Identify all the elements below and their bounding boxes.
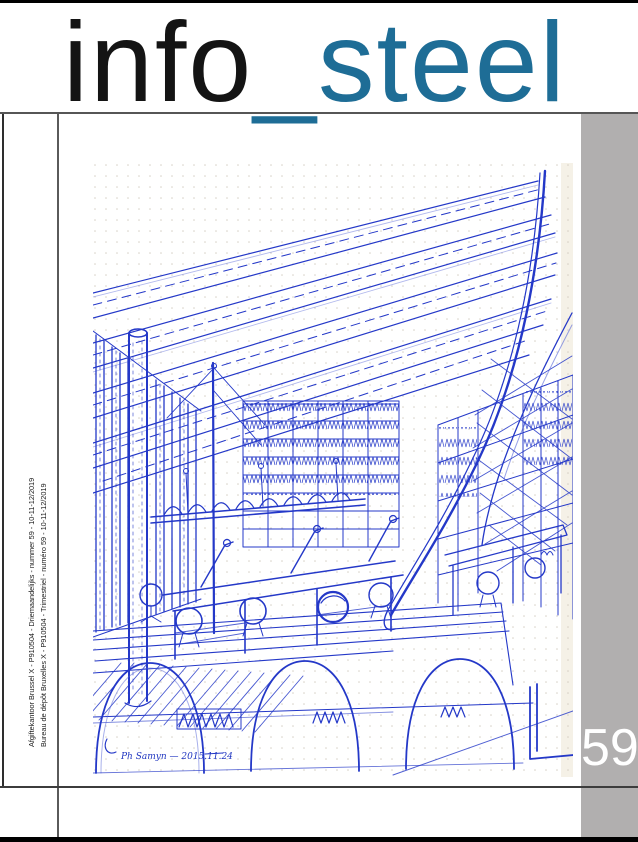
column-divider-line	[57, 114, 59, 837]
magazine-cover: { "masthead": { "title_word_black": "inf…	[0, 0, 638, 842]
imprint-block: Afgiftekantoor Brussel X - P910504 - Dri…	[26, 515, 49, 747]
cover-sketch: Ph Samyn — 2015.11.24	[93, 163, 573, 777]
cover-sketch-area: Ph Samyn — 2015.11.24	[93, 163, 573, 777]
issue-number: 59	[581, 722, 638, 774]
footer-rule	[0, 786, 638, 788]
imprint-line-french: Bureau de dépôt Bruxelles X - P910504 - …	[38, 515, 50, 747]
masthead-word-steel: _steel	[253, 0, 567, 125]
frame-left-edge	[2, 114, 4, 786]
signature-text: Ph Samyn — 2015.11.24	[120, 752, 233, 762]
masthead-word-info: info	[63, 0, 253, 125]
masthead-title: info_steel	[63, 6, 567, 119]
imprint-line-dutch: Afgiftekantoor Brussel X - P910504 - Dri…	[26, 515, 38, 747]
bottom-border	[0, 837, 638, 842]
